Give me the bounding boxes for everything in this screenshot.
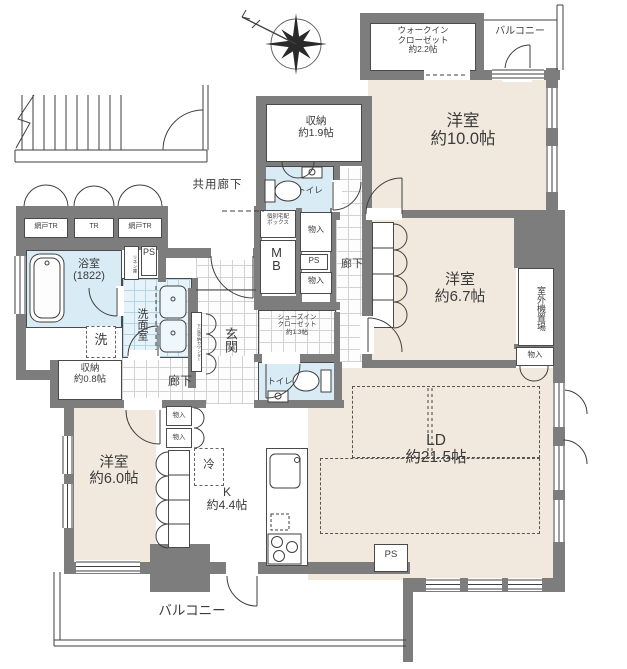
washroom-label: 洗面室	[131, 297, 147, 351]
toilet1-label: トイレ	[294, 186, 326, 196]
kitchen-label-line: 約4.4帖	[196, 499, 258, 512]
kitchen-counter	[266, 448, 308, 566]
storage08-label-line: 約0.8帖	[58, 375, 122, 386]
storage19-label: 収納 約1.9帖	[272, 116, 360, 140]
bedroom67-label-line: 約6.7帖	[412, 289, 508, 306]
wall	[360, 13, 484, 23]
ld-label-line: LD	[390, 432, 482, 449]
laundry-label: 洗	[86, 333, 116, 348]
upper-corridor-floor	[336, 168, 364, 312]
trunk-room-doors	[24, 185, 162, 206]
balcony-top-label: バルコニー	[486, 26, 554, 37]
wall	[254, 354, 340, 362]
monoire-label: 物入	[166, 412, 192, 419]
wall	[362, 210, 546, 218]
bath-label-line: (1822)	[54, 270, 124, 282]
bedroom67-label-line: 洋室	[412, 272, 508, 289]
pillar	[514, 210, 564, 268]
closet-pleats	[156, 452, 168, 548]
closet-shelf	[372, 222, 394, 328]
ld-zone-lower	[320, 458, 540, 534]
ps-label: PS	[300, 257, 328, 266]
floor-plan: 共用廊下 網戸TR TR 網戸TR ウォークイン クローゼット 約2.2帖 バル…	[0, 0, 627, 669]
compass-icon	[242, 10, 327, 75]
bedroom67-label: 洋室 約6.7帖	[412, 272, 508, 306]
monoire-label: 物入	[166, 434, 192, 441]
bedroom60-label-line: 洋室	[72, 455, 156, 471]
upper-corridor-label: 廊下	[334, 258, 370, 270]
monoire-label: 物入	[300, 226, 332, 235]
stairs	[15, 85, 208, 162]
delivery-label: 個別宅配 ボックス	[260, 214, 296, 226]
ld-label: LD 約21.5帖	[390, 432, 482, 467]
bedroom10-label-line: 洋室	[408, 112, 518, 130]
trunk-room-label: TR	[74, 223, 114, 231]
balcony-bottom-label: バルコニー	[140, 603, 244, 618]
bath-label-line: 浴室	[54, 258, 124, 270]
ld-label-line: 約21.5帖	[390, 449, 482, 466]
wall	[164, 248, 214, 258]
wall	[254, 302, 340, 310]
wall	[254, 400, 344, 408]
wall	[250, 248, 260, 258]
outdoor-unit-label: 室外機置場	[527, 273, 545, 343]
common-corridor-label: 共用廊下	[170, 179, 265, 192]
storage19-label-line: 収納	[272, 116, 360, 128]
bedroom10-label: 洋室 約10.0帖	[408, 112, 518, 149]
wall	[366, 360, 516, 368]
trunk-room-label: 網戸TR	[118, 223, 162, 231]
delivery-label-line: ボックス	[260, 220, 296, 226]
fridge-label: 冷	[194, 459, 224, 472]
bedroom60-label: 洋室 約6.0帖	[72, 455, 156, 487]
linen-label: リネン庫	[126, 249, 137, 279]
closet-pleats	[194, 408, 204, 448]
wall	[410, 578, 565, 592]
entrance-label: 玄関	[219, 314, 237, 366]
mb-label: MB	[268, 246, 285, 273]
sic-label: シューズイン クローゼット 約1.3帖	[256, 314, 338, 336]
monoire-label: 物入	[516, 351, 554, 359]
kitchen-label: K 約4.4帖	[196, 486, 258, 513]
ps-bottom-label: PS	[378, 550, 404, 561]
wall	[476, 18, 484, 74]
wall	[360, 70, 560, 80]
storage19-label-line: 約1.9帖	[272, 128, 360, 140]
corridor-label: 廊下	[158, 375, 202, 388]
ps-label: PS	[143, 248, 155, 257]
wall	[64, 400, 126, 408]
bedroom60-label-line: 約6.0帖	[72, 471, 156, 487]
wall	[64, 562, 410, 574]
bedroom10-label-line: 約10.0帖	[408, 130, 518, 148]
wic-label: ウォークイン クローゼット 約2.2帖	[372, 26, 474, 55]
sic-label-line: 約1.3帖	[256, 329, 338, 336]
monoire-label: 物入	[300, 277, 332, 286]
wall	[158, 246, 166, 282]
closet-shelf	[168, 450, 190, 548]
sic-label-line: クローゼット	[256, 321, 338, 328]
bath-label: 浴室 (1822)	[54, 258, 124, 283]
trunk-room-label: 網戸TR	[24, 223, 68, 231]
pillar	[150, 544, 210, 592]
wall	[256, 96, 266, 216]
shoe-counter-label: 下足収納カウンター	[193, 315, 201, 371]
wic-label-line: 約2.2帖	[372, 45, 474, 55]
storage08-label: 収納 約0.8帖	[58, 364, 122, 385]
wall	[362, 96, 372, 368]
wall	[546, 68, 558, 214]
toilet2-label: トイレ	[264, 377, 296, 387]
